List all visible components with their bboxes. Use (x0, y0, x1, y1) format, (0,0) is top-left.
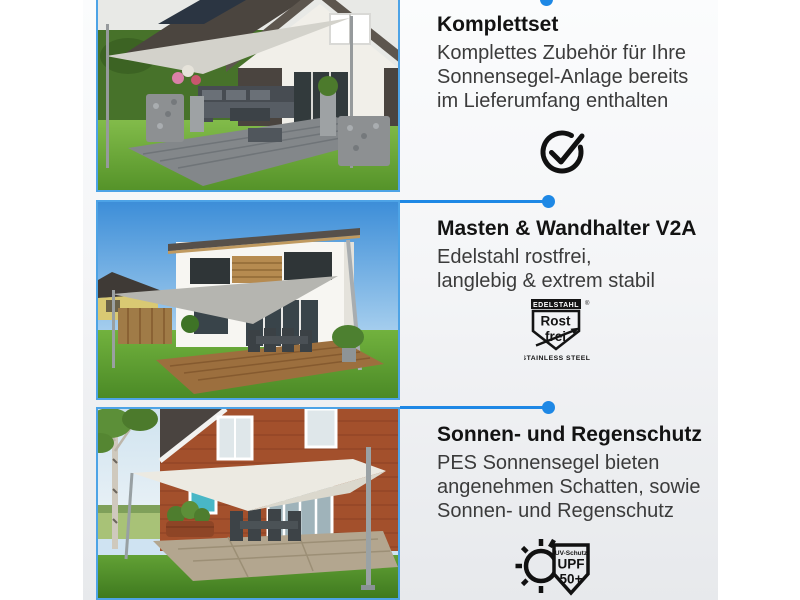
sun-rays (516, 539, 555, 593)
section-masten-wandhalter: Masten & Wandhalter V2A Edelstahl rostfr… (437, 215, 722, 293)
registered-mark: ® (585, 300, 590, 307)
section-1-heading: Komplettset (437, 11, 722, 38)
upf-value: 50+ (560, 572, 583, 587)
seal-bottom-label: STAINLESS STEEL (524, 355, 590, 362)
photo-frame-schutz (96, 407, 400, 600)
pole-base (361, 585, 375, 590)
upf-seal-icon: UV-Schutz UPF 50+ (514, 530, 594, 600)
sail-pole-left (106, 24, 109, 168)
section-1-body: Komplettes Zubehör für Ihre Sonnensegel-… (437, 41, 722, 113)
section-2-heading: Masten & Wandhalter V2A (437, 215, 722, 242)
photo-illustration-brick-house (98, 409, 398, 598)
seal-top-label: EDELSTAHL (533, 302, 579, 309)
sun-circle (526, 551, 556, 581)
photo-frame-masten (96, 200, 400, 400)
photo-illustration-lounge-terrace (98, 0, 398, 190)
section-2-body: Edelstahl rostfrei, langlebig & extrem s… (437, 245, 722, 293)
connector-dot-2 (542, 195, 555, 208)
sail-pole-right (366, 447, 371, 589)
wood-fence (118, 308, 172, 344)
sail-pole-left (112, 290, 115, 368)
photo-illustration-modern-house (98, 202, 398, 398)
section-3-body: PES Sonnensegel bieten angenehmen Schatt… (437, 451, 722, 523)
seal-word-rost: Rost (541, 314, 572, 329)
connector-line-3 (400, 406, 548, 409)
body-line: Edelstahl rostfrei, (437, 245, 722, 269)
connector-dot-3 (542, 401, 555, 414)
infographic-canvas: Komplettset Komplettes Zubehör für Ihre … (0, 0, 800, 600)
body-line: PES Sonnensegel bieten (437, 451, 722, 475)
body-line: Sonnensegel-Anlage bereits (437, 65, 722, 89)
body-line: Sonnen- und Regenschutz (437, 499, 722, 523)
connector-line-2 (400, 200, 548, 203)
rostfrei-seal-icon: EDELSTAHL ® Rost frei STAINLESS STEEL (524, 298, 594, 364)
section-sonnen-regenschutz: Sonnen- und Regenschutz PES Sonnensegel … (437, 421, 722, 523)
body-line: angenehmen Schatten, sowie (437, 475, 722, 499)
photo-frame-komplettset (96, 0, 400, 192)
body-line: langlebig & extrem stabil (437, 269, 722, 293)
upf-word: UPF (558, 557, 585, 572)
body-line: im Lieferumfang enthalten (437, 89, 722, 113)
body-line: Komplettes Zubehör für Ihre (437, 41, 722, 65)
section-komplettset: Komplettset Komplettes Zubehör für Ihre … (437, 11, 722, 113)
check-circle-icon (537, 123, 591, 177)
section-3-heading: Sonnen- und Regenschutz (437, 421, 722, 448)
